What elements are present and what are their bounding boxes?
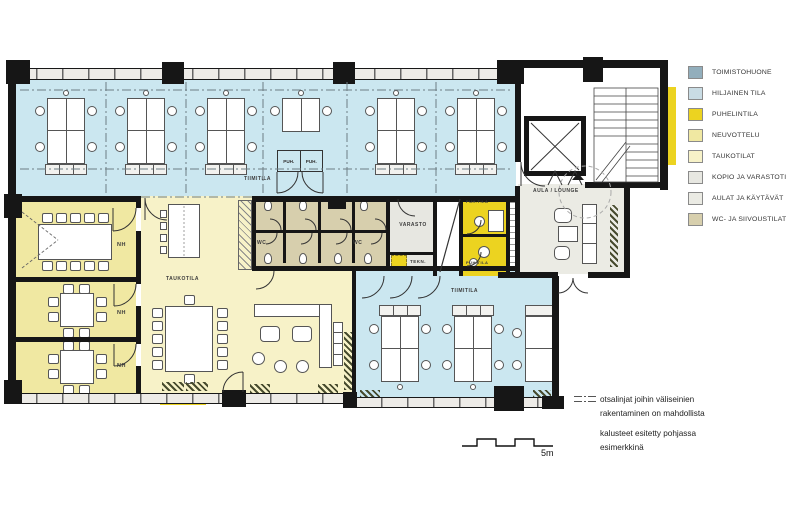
legend-swatch [688, 150, 703, 163]
desk-cluster [457, 98, 495, 164]
bar-stool [160, 234, 167, 242]
office-chair [365, 142, 375, 152]
storage-cabinet [452, 305, 494, 316]
meeting-chair [56, 261, 67, 271]
meeting-table [60, 293, 94, 327]
structural-column [333, 62, 355, 84]
wall-segment [552, 276, 559, 406]
office-chair [35, 106, 45, 116]
meeting-chair [70, 261, 81, 271]
kitchen-island [168, 204, 200, 258]
lobby-sofa [582, 204, 597, 264]
pouf [252, 352, 265, 365]
legend-swatch [688, 66, 703, 79]
office-chair [247, 106, 257, 116]
wall-segment [8, 66, 16, 404]
desk-cluster [377, 98, 415, 164]
desk-cluster [282, 98, 320, 132]
plant [344, 332, 352, 390]
plant [610, 205, 618, 267]
wall-segment [10, 196, 141, 202]
legend-item-toimistohuone: TOIMISTOHUONE [688, 66, 786, 79]
meeting-chair [96, 312, 107, 322]
dining-table [165, 306, 213, 372]
wall-segment [256, 230, 386, 233]
wall-segment [463, 234, 509, 237]
office-chair [195, 142, 205, 152]
wall-segment [252, 266, 520, 271]
sofa [319, 304, 332, 368]
structural-column [583, 57, 603, 82]
toilet [364, 253, 372, 264]
office-chair [247, 142, 257, 152]
dining-chair [152, 308, 163, 318]
floor-plan-canvas: PUH. PUH. [0, 0, 786, 524]
office-chair [417, 142, 427, 152]
office-chair [497, 106, 507, 116]
power-pole-marker [470, 384, 476, 390]
office-chair [474, 216, 485, 227]
phone-room-desk [488, 210, 504, 232]
legend: TOIMISTOHUONE HILJAINEN TILA PUHELINTILA… [688, 66, 786, 234]
meeting-chair [48, 354, 59, 364]
structural-column [4, 380, 22, 404]
lounge-chair [478, 246, 490, 258]
legend-label: TOIMISTOHUONE [712, 69, 772, 76]
structural-column [6, 60, 30, 84]
power-pole-marker [473, 90, 479, 96]
wall-segment [328, 196, 346, 209]
wall-segment [498, 272, 558, 278]
office-chair [35, 142, 45, 152]
office-chair [115, 142, 125, 152]
lounge-chair [554, 208, 572, 223]
legend-item-neuvottelu: NEUVOTTELU [688, 129, 786, 142]
storage-cabinet [375, 164, 417, 175]
note-partitions-line2: rakentaminen on mahdollista [600, 407, 705, 421]
label-team-space-bottom: TIIMITILA [451, 288, 478, 294]
storage-cabinet [45, 164, 87, 175]
meeting-chair [63, 341, 74, 351]
wall-segment [515, 186, 520, 276]
legend-swatch [688, 171, 703, 184]
label-phone-room-2: PUH.TILA [466, 260, 488, 265]
office-chair [167, 106, 177, 116]
meeting-chair [48, 369, 59, 379]
toilet [264, 253, 272, 264]
bar-stool [160, 210, 167, 218]
toilet [334, 253, 342, 264]
label-lobby-lounge: AULA / LOUNGE [533, 188, 579, 194]
label-meeting-room-1: NH [117, 242, 126, 248]
meeting-chair [42, 213, 53, 223]
window-band-bottom-left [10, 393, 355, 404]
zone-phone-sliver-right [668, 87, 676, 165]
meeting-chair [48, 312, 59, 322]
kitchen-cabinet-strip [238, 200, 252, 270]
legend-item-hiljainen-tila: HILJAINEN TILA [688, 87, 786, 100]
wall-segment [524, 116, 586, 121]
meeting-chair [98, 261, 109, 271]
meeting-chair [96, 354, 107, 364]
meeting-chair [42, 261, 53, 271]
label-meeting-room-2: NH [117, 310, 126, 316]
dining-chair [152, 360, 163, 370]
wall-segment [524, 116, 529, 176]
label-wc-left: WC [257, 240, 266, 246]
meeting-chair [96, 297, 107, 307]
dining-chair [184, 295, 195, 305]
label-meeting-room-3: NH [117, 363, 126, 369]
meeting-chair [79, 284, 90, 294]
dining-chair [217, 347, 228, 357]
legend-label: AULAT JA KÄYTÄVÄT [712, 195, 784, 202]
structural-column [4, 194, 22, 218]
legend-item-wc-ja-siivoustilat: WC- JA SIIVOUSTILAT [688, 213, 786, 226]
coffee-table [558, 226, 578, 242]
legend-swatch [688, 87, 703, 100]
legend-label: WC- JA SIIVOUSTILAT [712, 216, 786, 223]
wall-segment [10, 337, 136, 342]
dining-chair [217, 308, 228, 318]
wall-segment [283, 200, 286, 263]
power-pole-marker [143, 90, 149, 96]
wall-segment [660, 60, 668, 190]
shelf [333, 322, 343, 366]
label-wc-right: WC [353, 240, 362, 246]
storage-cabinet [125, 164, 167, 175]
office-chair [497, 142, 507, 152]
desk-cluster [525, 316, 553, 382]
desk-cluster [207, 98, 245, 164]
legend-swatch [688, 129, 703, 142]
meeting-table [60, 350, 94, 384]
legend-item-puhelintila: PUHELINTILA [688, 108, 786, 121]
window-band-top [10, 68, 517, 80]
storage-cabinet [379, 305, 421, 316]
bar-stool [160, 246, 167, 254]
label-break-room: TAUKOTILA [166, 276, 199, 282]
legend-item-aulat-ja-kaytavat: AULAT JA KÄYTÄVÄT [688, 192, 786, 205]
plant [318, 384, 338, 393]
phone-booth-label: PUH. [301, 151, 323, 171]
desk-cluster [454, 316, 492, 382]
window-band-bottom-right [355, 397, 555, 408]
phone-booth: PUH. PUH. [277, 150, 323, 172]
dash-dot-line-symbol [574, 396, 596, 402]
armchair [260, 326, 280, 342]
wall-segment [136, 366, 141, 394]
office-chair [512, 328, 522, 338]
structural-column [542, 396, 564, 409]
meeting-chair [98, 213, 109, 223]
desk-cluster [127, 98, 165, 164]
office-chair [369, 360, 379, 370]
office-chair [445, 142, 455, 152]
structural-column [222, 390, 246, 407]
legend-swatch [688, 192, 703, 205]
conference-table [38, 224, 112, 260]
note-furniture-line1: kalusteet esitetty pohjassa [600, 427, 696, 441]
storage-cabinet [455, 164, 497, 175]
meeting-chair [56, 213, 67, 223]
plant [186, 382, 208, 391]
legend-label: TAUKOTILAT [712, 153, 755, 160]
wall-segment [386, 196, 390, 271]
legend-swatch [688, 213, 703, 226]
toilet [299, 253, 307, 264]
wall-segment [585, 182, 668, 188]
office-chair [87, 142, 97, 152]
dining-chair [217, 334, 228, 344]
wall-segment [136, 196, 141, 208]
office-chair [421, 324, 431, 334]
dining-chair [152, 334, 163, 344]
legend-swatch [688, 108, 703, 121]
wall-segment [10, 277, 136, 282]
wall-segment [252, 196, 256, 271]
structural-column [162, 62, 184, 84]
office-chair [322, 106, 332, 116]
legend-label: PUHELINTILA [712, 111, 758, 118]
lounge-chair [554, 246, 570, 260]
meeting-chair [70, 213, 81, 223]
power-pole-marker [298, 90, 304, 96]
office-chair [442, 324, 452, 334]
label-team-space-top: TIIMITILA [244, 176, 271, 182]
office-chair [195, 106, 205, 116]
structural-column [497, 60, 524, 84]
note-partitions-line1: otsalinjat joihin väliseinien [600, 393, 705, 407]
wall-segment [318, 200, 321, 263]
office-chair [365, 106, 375, 116]
wall-segment [352, 271, 356, 398]
office-chair [494, 360, 504, 370]
meeting-chair [84, 213, 95, 223]
legend-item-kopio-ja-varastotilat: KOPIO JA VARASTOTILAT [688, 171, 786, 184]
office-chair [442, 360, 452, 370]
wall-segment [136, 231, 141, 284]
office-chair [445, 106, 455, 116]
note-furniture: kalusteet esitetty pohjassa esimerkkinä [600, 427, 696, 454]
meeting-chair [48, 297, 59, 307]
note-partitions: otsalinjat joihin väliseinien rakentamin… [600, 393, 705, 420]
power-pole-marker [223, 90, 229, 96]
phone-booth-label: PUH. [278, 151, 301, 171]
note-furniture-line2: esimerkkinä [600, 441, 696, 455]
office-chair [115, 106, 125, 116]
office-chair [369, 324, 379, 334]
pouf [296, 360, 309, 373]
office-chair [417, 106, 427, 116]
office-chair [494, 324, 504, 334]
scale-bar-label: 5m [541, 448, 554, 458]
bar-stool [160, 222, 167, 230]
wall-segment [506, 196, 510, 276]
dining-chair [217, 360, 228, 370]
plant [162, 382, 184, 391]
desk-cluster [381, 316, 419, 382]
legend-label: NEUVOTTELU [712, 132, 760, 139]
dining-chair [217, 321, 228, 331]
wall-segment [624, 186, 630, 278]
plant [250, 384, 270, 393]
storage-cabinet [205, 164, 247, 175]
wall-segment [390, 252, 434, 255]
desk-cluster [47, 98, 85, 164]
wall-segment [352, 200, 355, 263]
meeting-chair [63, 284, 74, 294]
power-pole-marker [63, 90, 69, 96]
wall-segment [433, 196, 437, 276]
structural-column [494, 386, 524, 411]
meeting-chair [79, 341, 90, 351]
legend-label: HILJAINEN TILA [712, 90, 766, 97]
wall-segment [136, 306, 141, 344]
office-chair [421, 360, 431, 370]
power-pole-marker [397, 384, 403, 390]
storage-cabinet [525, 305, 553, 316]
armchair [292, 326, 312, 342]
label-phone-room-1: PUH.TILA [466, 199, 488, 204]
dining-chair [152, 321, 163, 331]
label-technical: TEKN. [410, 259, 426, 264]
power-pole-marker [393, 90, 399, 96]
meeting-chair [84, 261, 95, 271]
wall-segment [524, 171, 586, 176]
office-chair [270, 106, 280, 116]
meeting-chair [96, 369, 107, 379]
pouf [274, 360, 287, 373]
structural-column [343, 392, 357, 408]
legend-label: KOPIO JA VARASTOTILAT [712, 174, 786, 181]
office-chair [167, 142, 177, 152]
wall-segment [581, 116, 586, 176]
dining-chair [152, 347, 163, 357]
label-storage: VARASTO [392, 222, 434, 228]
office-chair [512, 360, 522, 370]
legend-item-taukotilat: TAUKOTILAT [688, 150, 786, 163]
office-chair [87, 106, 97, 116]
